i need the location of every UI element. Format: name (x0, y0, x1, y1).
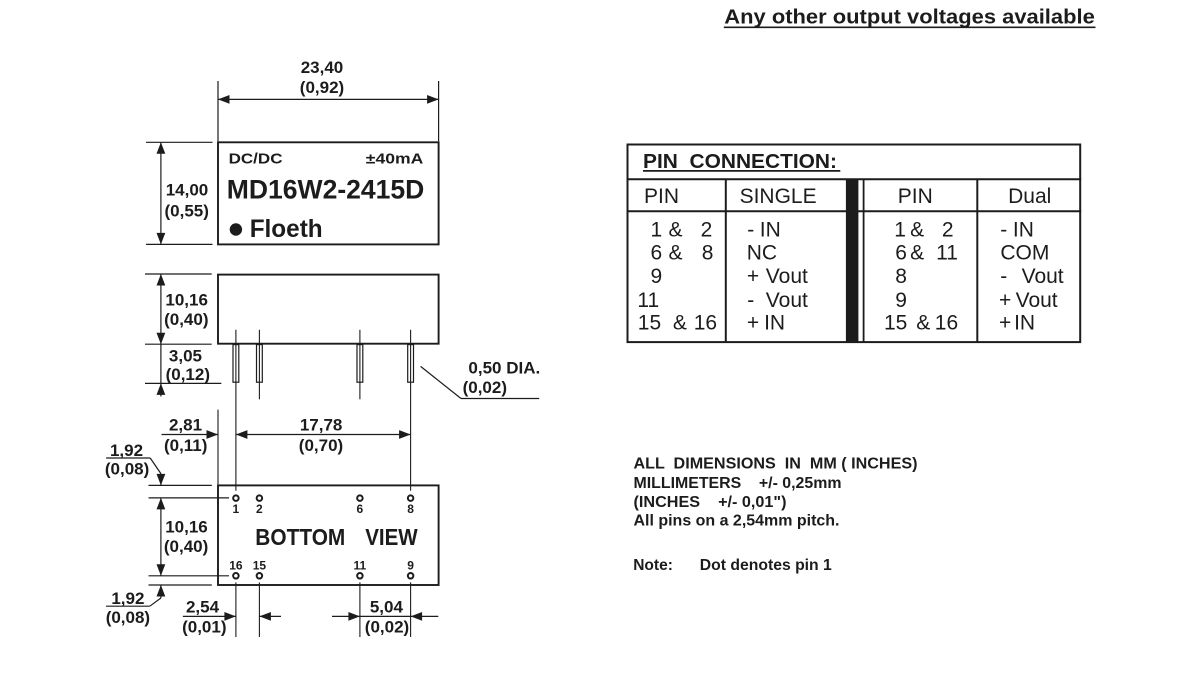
svg-text:&: & (916, 311, 930, 334)
svg-text:Any other output voltages avai: Any other output voltages available (724, 6, 1094, 29)
svg-text:1: 1 (651, 218, 663, 241)
svg-text:All pins on a 2,54mm pitch.: All pins on a 2,54mm pitch. (634, 513, 840, 530)
svg-text:-: - (1000, 265, 1007, 288)
svg-text:PIN: PIN (644, 185, 679, 208)
svg-text:3,05: 3,05 (169, 347, 202, 366)
svg-text:+: + (747, 265, 759, 288)
svg-text:5,04: 5,04 (370, 598, 404, 617)
svg-text:&: & (910, 218, 924, 241)
svg-text:Vout: Vout (1016, 289, 1058, 312)
svg-text:2: 2 (942, 218, 954, 241)
svg-text:+: + (999, 289, 1011, 312)
svg-text:(0,12): (0,12) (166, 365, 210, 384)
svg-text:(0,02): (0,02) (463, 378, 507, 397)
svg-text:6: 6 (651, 241, 663, 264)
svg-text:1,92: 1,92 (110, 441, 143, 460)
svg-text:1,92: 1,92 (111, 589, 144, 608)
svg-text:-: - (1000, 218, 1007, 241)
svg-text:IN: IN (760, 218, 781, 241)
svg-text:MD16W2-2415D: MD16W2-2415D (227, 175, 424, 205)
svg-text:16: 16 (229, 559, 243, 573)
svg-text:15: 15 (638, 311, 661, 334)
svg-text:±40mA: ±40mA (366, 151, 424, 168)
svg-text:+: + (999, 311, 1011, 334)
svg-text:11: 11 (637, 289, 659, 312)
svg-text:9: 9 (895, 289, 907, 312)
svg-text:Vout: Vout (766, 265, 808, 288)
svg-text:8: 8 (702, 241, 714, 264)
svg-text:14,00: 14,00 (166, 181, 209, 200)
svg-text:Vout: Vout (1022, 265, 1064, 288)
svg-text:VIEW: VIEW (365, 524, 418, 550)
svg-text:COM: COM (1000, 241, 1049, 264)
svg-text:IN: IN (764, 311, 785, 334)
svg-text:1: 1 (233, 502, 240, 516)
svg-text:9: 9 (651, 265, 663, 288)
svg-text:Dual: Dual (1008, 185, 1051, 208)
svg-text:11: 11 (354, 559, 367, 573)
svg-text:10,16: 10,16 (165, 518, 208, 537)
svg-text:8: 8 (895, 265, 907, 288)
svg-text:(0,55): (0,55) (165, 201, 209, 220)
svg-text:6: 6 (357, 502, 364, 516)
svg-text:(INCHES +/- 0,01"): (INCHES +/- 0,01") (634, 494, 787, 511)
svg-text:8: 8 (407, 502, 414, 516)
svg-text:10,16: 10,16 (165, 290, 208, 309)
svg-text:(0,02): (0,02) (365, 618, 409, 637)
svg-text:Floeth: Floeth (250, 215, 323, 243)
svg-text:DC/DC: DC/DC (229, 151, 283, 168)
svg-text:PIN: PIN (898, 185, 933, 208)
svg-text:+: + (747, 311, 759, 334)
svg-text:-: - (747, 218, 754, 241)
svg-text:(0,92): (0,92) (300, 78, 344, 97)
svg-text:16: 16 (935, 311, 958, 334)
svg-text:MILLIMETERS +/- 0,25mm: MILLIMETERS +/- 0,25mm (634, 475, 842, 492)
svg-text:23,40: 23,40 (301, 58, 344, 77)
svg-text:11: 11 (936, 241, 958, 264)
svg-text:ALL DIMENSIONS IN MM ( INCH: ALL DIMENSIONS IN MM ( INCHES) (634, 456, 918, 473)
svg-text:IN: IN (1013, 218, 1034, 241)
svg-text:15: 15 (884, 311, 907, 334)
svg-text:2: 2 (256, 502, 263, 516)
svg-text:6: 6 (895, 241, 907, 264)
svg-text:9: 9 (407, 559, 414, 573)
svg-text:SINGLE: SINGLE (740, 185, 817, 208)
svg-text:&: & (669, 241, 683, 264)
svg-text:0,50 DIA.: 0,50 DIA. (468, 358, 540, 377)
svg-text:2,54: 2,54 (186, 598, 220, 617)
svg-text:(0,08): (0,08) (105, 459, 149, 478)
svg-text:Note:: Note: (633, 557, 673, 574)
svg-text:17,78: 17,78 (300, 415, 343, 434)
svg-text:BOTTOM: BOTTOM (255, 524, 345, 550)
svg-text:&: & (910, 241, 924, 264)
svg-text:(0,40): (0,40) (164, 537, 208, 556)
svg-text:PIN CONNECTION:: PIN CONNECTION: (643, 151, 837, 173)
svg-text:15: 15 (253, 559, 267, 573)
svg-text:(0,08): (0,08) (106, 608, 150, 627)
svg-text:-: - (747, 289, 754, 312)
svg-text:1: 1 (894, 218, 906, 241)
svg-text:Dot denotes pin 1: Dot denotes pin 1 (700, 557, 832, 574)
svg-text:16: 16 (694, 311, 717, 334)
svg-text:Vout: Vout (766, 289, 808, 312)
svg-text:(0,11): (0,11) (164, 436, 207, 455)
svg-text:&: & (673, 311, 687, 334)
svg-text:2,81: 2,81 (169, 415, 202, 434)
svg-text:(0,40): (0,40) (164, 310, 208, 329)
svg-text:NC: NC (747, 241, 777, 264)
svg-text:IN: IN (1014, 311, 1035, 334)
svg-text:2: 2 (701, 218, 713, 241)
svg-text:(0,70): (0,70) (299, 436, 343, 455)
svg-text:(0,01): (0,01) (182, 618, 226, 637)
svg-text:&: & (669, 218, 683, 241)
